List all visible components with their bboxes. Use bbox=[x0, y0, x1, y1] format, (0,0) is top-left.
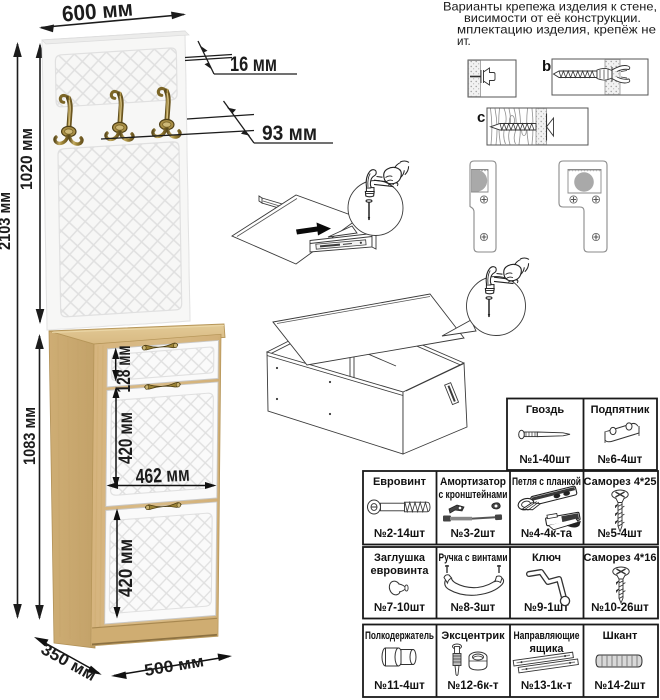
svg-text:1020 мм: 1020 мм bbox=[18, 128, 36, 190]
svg-text:Саморез 4*25: Саморез 4*25 bbox=[584, 476, 657, 488]
svg-text:с кронштейнами: с кронштейнами bbox=[439, 489, 508, 501]
svg-text:Гвоздь: Гвоздь bbox=[526, 404, 565, 416]
svg-text:№11-4шт: №11-4шт bbox=[374, 680, 425, 692]
svg-text:№2-14шт: №2-14шт bbox=[374, 528, 425, 540]
svg-text:420 мм: 420 мм bbox=[116, 412, 137, 464]
svg-text:№14-2шт: №14-2шт bbox=[594, 680, 645, 692]
svg-text:93 мм: 93 мм bbox=[262, 122, 317, 145]
svg-text:Заглушка: Заглушка bbox=[374, 552, 426, 564]
svg-text:№12-6к-т: №12-6к-т bbox=[447, 680, 498, 692]
svg-text:Амортизатор: Амортизатор bbox=[440, 476, 506, 488]
svg-text:№4-4к-та: №4-4к-та bbox=[521, 528, 573, 540]
svg-text:№7-10шт: №7-10шт bbox=[374, 602, 425, 614]
svg-text:№6-4шт: №6-4шт bbox=[598, 454, 643, 466]
svg-text:Петля с планкой: Петля с планкой bbox=[512, 476, 581, 488]
svg-text:Шкант: Шкант bbox=[603, 630, 638, 642]
svg-text:c: c bbox=[477, 109, 485, 126]
svg-text:Направляющие: Направляющие bbox=[514, 630, 580, 642]
svg-text:462 мм: 462 мм bbox=[135, 463, 190, 489]
svg-text:№1-40шт: №1-40шт bbox=[519, 454, 570, 466]
svg-text:Евровинт: Евровинт bbox=[373, 476, 427, 488]
svg-text:Полкодержатель: Полкодержатель bbox=[365, 630, 434, 642]
svg-text:евровинта: евровинта bbox=[371, 565, 430, 577]
svg-text:№3-2шт: №3-2шт bbox=[451, 528, 496, 540]
svg-text:№13-1к-т: №13-1к-т bbox=[521, 680, 572, 692]
svg-text:мплектацию изделия, крепёж не: мплектацию изделия, крепёж не bbox=[457, 24, 656, 37]
svg-text:Ключ: Ключ bbox=[532, 552, 561, 564]
svg-text:420 мм: 420 мм bbox=[116, 539, 137, 597]
svg-text:1083 мм: 1083 мм bbox=[21, 407, 39, 465]
svg-text:16 мм: 16 мм bbox=[230, 53, 277, 76]
svg-text:Ручка с винтами: Ручка с винтами bbox=[439, 552, 508, 564]
svg-text:Эксцентрик: Эксцентрик bbox=[441, 630, 505, 642]
svg-text:ит.: ит. bbox=[457, 35, 471, 48]
svg-text:128 мм: 128 мм bbox=[114, 346, 135, 393]
svg-text:Подпятник: Подпятник bbox=[591, 404, 650, 416]
svg-text:Саморез 4*16: Саморез 4*16 bbox=[584, 552, 657, 564]
svg-text:№10-26шт: №10-26шт bbox=[591, 602, 649, 614]
svg-text:2103 мм: 2103 мм bbox=[0, 192, 14, 250]
svg-text:ящика: ящика bbox=[529, 643, 564, 655]
svg-text:b: b bbox=[542, 58, 551, 75]
svg-text:№8-3шт: №8-3шт bbox=[451, 602, 496, 614]
